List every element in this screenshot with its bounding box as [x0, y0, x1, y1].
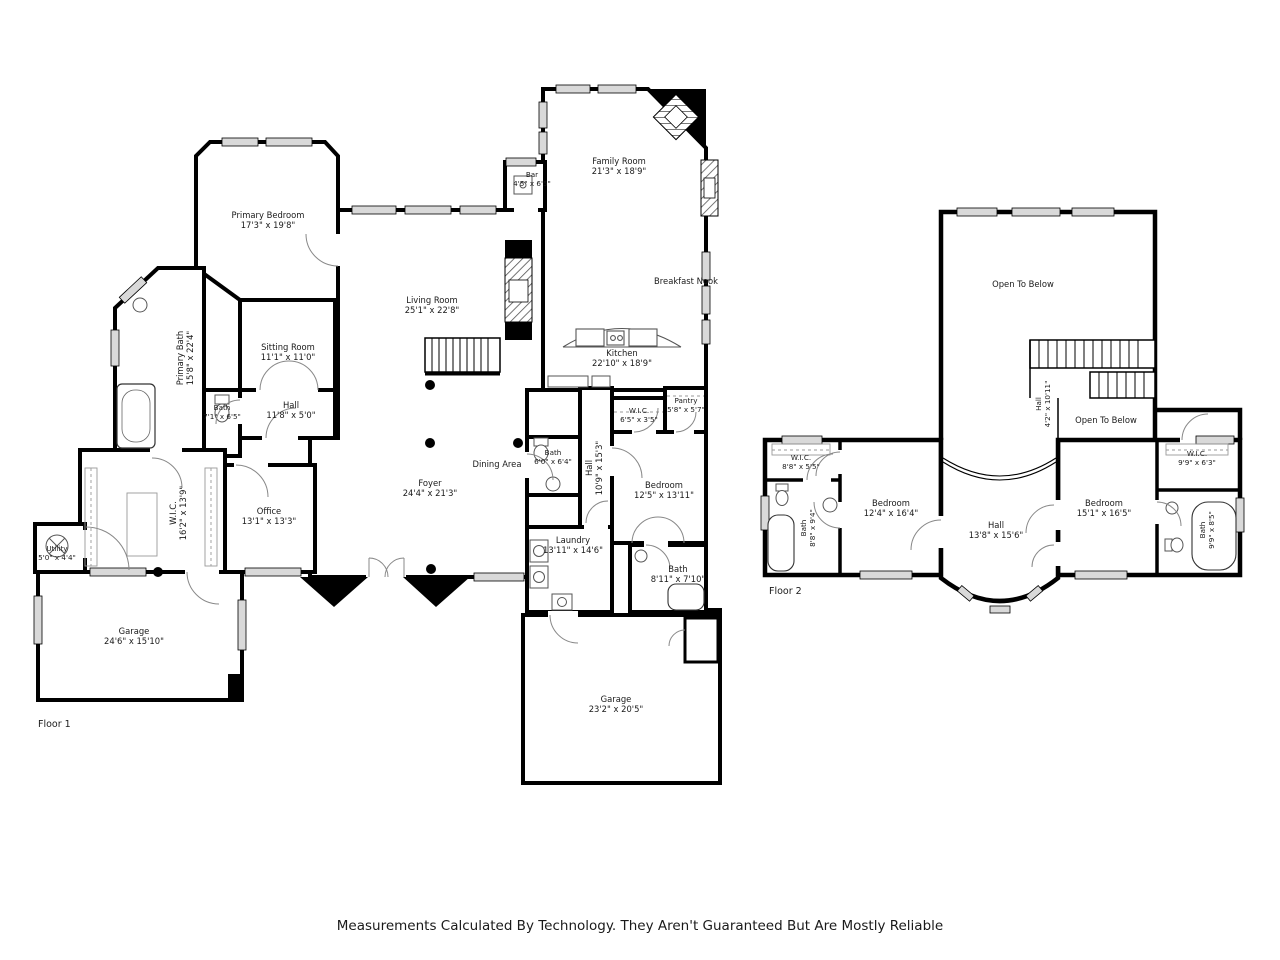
upper-hall-corridor	[1155, 410, 1240, 440]
stairs	[425, 338, 500, 374]
room-label-open-to-below-1: Open To Below	[992, 279, 1054, 289]
sink-icon	[823, 498, 837, 512]
floor2-label: Floor 2	[769, 586, 802, 597]
bathtub-icon	[768, 515, 794, 571]
sink-icon	[618, 336, 623, 341]
garage2-closet	[685, 618, 718, 662]
room-label-family-room: Family Room21'3" x 18'9"	[592, 156, 647, 176]
floor1-label: Floor 1	[38, 719, 71, 730]
room-label-primary-bath: Primary Bath15'8" x 22'4"	[175, 331, 195, 386]
garage1-notch	[228, 674, 242, 700]
kitchen-counter	[548, 376, 610, 387]
floorplan-canvas: Primary Bedroom17'3" x 19'8" Bar4'5" x 6…	[0, 0, 1280, 960]
wic1-walls	[80, 450, 225, 572]
room-label-dining-area: Dining Area	[473, 459, 522, 469]
bathtub-icon	[668, 584, 704, 610]
room-label-primary-bedroom: Primary Bedroom17'3" x 19'8"	[232, 210, 305, 230]
toilet-icon	[776, 484, 788, 506]
wall-step	[704, 608, 722, 618]
fireplace-icon	[505, 240, 532, 340]
room-label-living-room: Living Room25'1" x 22'8"	[405, 295, 460, 315]
sink-icon	[133, 298, 147, 312]
bathtub-icon	[117, 384, 155, 448]
room-label-sitting-room: Sitting Room11'1" x 11'0"	[261, 342, 316, 362]
chimney-icon	[701, 160, 718, 216]
room-label-breakfast-nook: Breakfast Nook	[654, 276, 718, 286]
sink-icon	[635, 550, 647, 562]
room-label-open-to-below-2: Open To Below	[1075, 415, 1137, 425]
disclaimer-text: Measurements Calculated By Technology. T…	[337, 918, 943, 934]
toilet-icon	[1165, 538, 1183, 552]
sink-icon	[611, 336, 616, 341]
